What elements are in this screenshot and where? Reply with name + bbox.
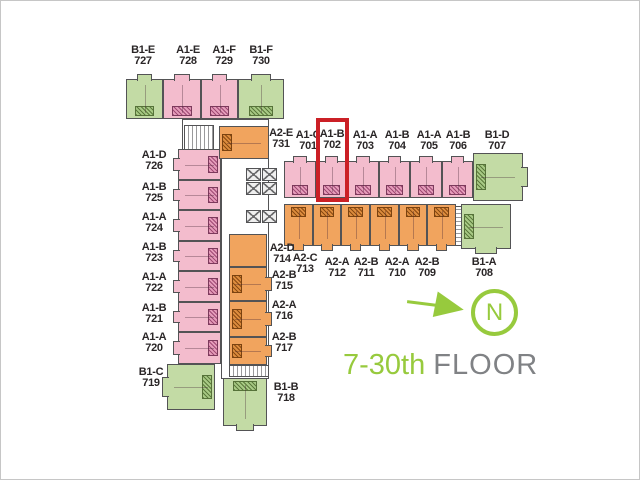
unit-727 [126, 79, 163, 119]
unit-730 [238, 79, 284, 119]
unit-726 [178, 149, 221, 180]
elevator-icon [262, 210, 277, 223]
unit-705 [410, 161, 442, 198]
unit-718 [223, 378, 267, 426]
unit-label-704: A1-B704 [385, 130, 409, 152]
elevator-icon [246, 182, 261, 195]
unit-728 [163, 79, 201, 119]
unit-719 [167, 364, 215, 410]
unit-label-729: A1-F729 [212, 45, 235, 67]
unit-label-711: A2-B711 [354, 257, 378, 279]
elevator-icon [262, 182, 277, 195]
unit-722 [178, 271, 221, 302]
unit-725 [178, 180, 221, 210]
unit-708 [461, 204, 511, 249]
unit-label-712: A2-A712 [325, 257, 349, 279]
unit-label-727: B1-E727 [131, 45, 155, 67]
unit-729 [201, 79, 238, 119]
unit-711 [370, 204, 399, 246]
unit-label-723: A1-B723 [142, 242, 166, 264]
unit-label-708: B1-A708 [472, 257, 496, 279]
unit-label-706: A1-B706 [446, 130, 470, 152]
north-arrow-icon [433, 291, 466, 322]
unit-label-720: A1-A720 [142, 332, 166, 354]
floor-range: 7-30th [343, 349, 425, 381]
elevator-icon [262, 168, 277, 181]
unit-713 [313, 204, 341, 246]
unit-723 [178, 241, 221, 271]
unit-label-726: A1-D726 [142, 150, 166, 172]
unit-label-722: A1-A722 [142, 272, 166, 294]
unit-721 [178, 302, 221, 332]
unit-701 [284, 161, 316, 198]
highlight-box [316, 118, 349, 202]
floor-plan: B1-E727A1-E728A1-F729B1-F730A1-D726A1-B7… [1, 1, 639, 479]
floor-caption: 7-30th FLOOR [343, 351, 538, 380]
unit-709 [427, 204, 456, 246]
unit-label-710: A2-A710 [385, 257, 409, 279]
unit-label-705: A1-A705 [417, 130, 441, 152]
unit-label-714: A2-D714 [270, 243, 294, 265]
unit-703 [347, 161, 379, 198]
unit-label-719: B1-C719 [139, 367, 163, 389]
unit-715 [229, 267, 267, 301]
unit-label-718: B1-B718 [274, 382, 298, 404]
unit-712 [341, 204, 370, 246]
unit-label-731: A2-E731 [269, 128, 293, 150]
floor-plan-image: B1-E727A1-E728A1-F729B1-F730A1-D726A1-B7… [0, 0, 640, 480]
unit-label-730: B1-F730 [249, 45, 272, 67]
unit-label-717: A2-B717 [272, 332, 296, 354]
unit-label-724: A1-A724 [142, 212, 166, 234]
stairs-south-icon [229, 365, 269, 377]
unit-label-703: A1-A703 [353, 130, 377, 152]
unit-724 [178, 210, 221, 241]
unit-716 [229, 301, 267, 337]
elevator-icon [246, 210, 261, 223]
floor-word: FLOOR [433, 349, 538, 381]
unit-714 [284, 204, 313, 246]
unit-704 [379, 161, 410, 198]
unit-label-721: A1-B721 [142, 303, 166, 325]
unit-706 [442, 161, 473, 198]
unit-710 [399, 204, 427, 246]
unit-717 [229, 337, 267, 365]
unit-label-728: A1-E728 [176, 45, 200, 67]
unit-label-707: B1-D707 [485, 130, 509, 152]
unit-label-709: A2-B709 [415, 257, 439, 279]
unit-label-713: A2-C713 [293, 253, 317, 275]
unit-label-716: A2-A716 [272, 300, 296, 322]
unit-label-725: A1-B725 [142, 182, 166, 204]
unit-707 [473, 153, 523, 201]
unit-714-extension [229, 234, 267, 267]
north-letter: N [486, 301, 503, 325]
unit-731 [219, 126, 269, 159]
unit-720 [178, 332, 221, 364]
north-indicator: N [471, 289, 518, 336]
elevator-icon [246, 168, 261, 181]
